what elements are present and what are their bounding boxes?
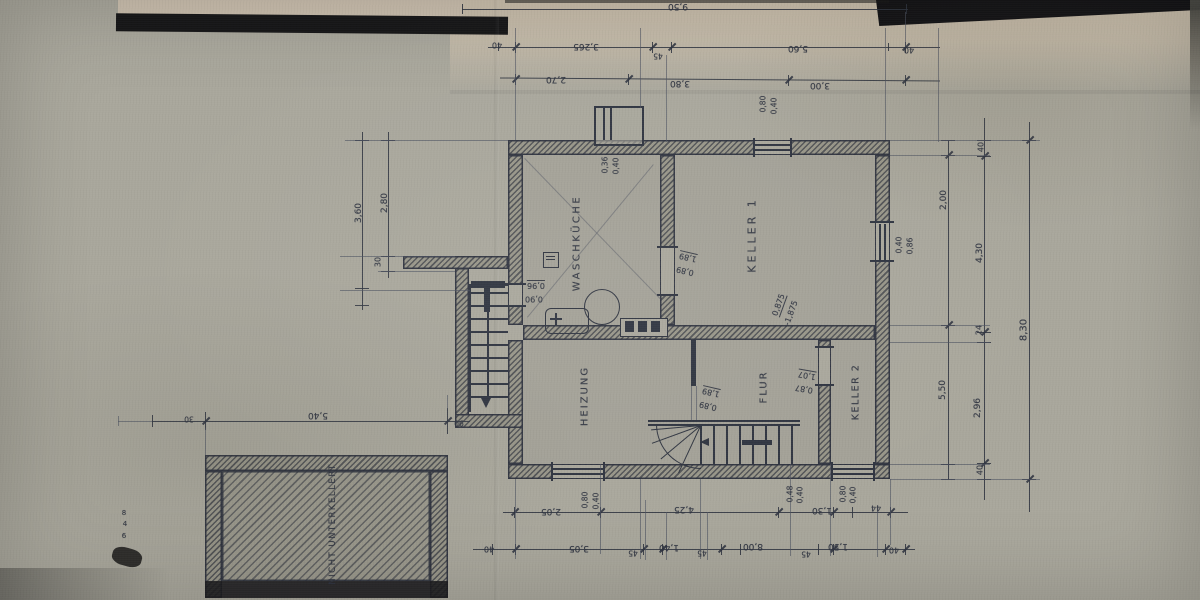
partition-heizung-flur-line [696,386,697,422]
window-right-line [884,224,886,260]
washing-machine-line [546,259,555,260]
drain-cross [555,313,557,325]
ink-blot-bottom-left [110,544,144,569]
window-jamb [603,462,605,481]
paper-crease-horizontal [450,90,1200,94]
window-right-wall [876,222,889,262]
sheet-edge-right [1190,0,1200,130]
dimension-text: 0,80 [759,96,768,113]
stair-down-arrow [481,398,491,408]
dimension-text: 45 [697,549,707,558]
door-jamb [657,246,678,248]
dimension-text: 4,25 [674,504,694,514]
dimension-text: 5,50 [938,380,948,400]
dimension-text: 2,96 [973,398,983,418]
dimension-text: 3,265 [573,41,599,51]
dimension-text: 0,40 [612,158,621,175]
partition-heizung-flur-line [691,386,692,422]
chimney-flue-line [610,108,612,140]
dimension-text: 0,86 [906,238,915,255]
laundry-tub [545,308,589,334]
dimension-text: 0,80 [581,492,590,509]
window-top-wall [755,141,790,154]
scanned-floor-plan-photo: WASCHKÜCHEKELLER 1HEIZUNGFLURKELLER 2NIC… [0,0,1200,600]
chimney-block [594,106,644,146]
window-bottom-right [833,465,873,478]
vent-grate-cell [651,321,660,332]
dimension-text: 6 [122,532,126,540]
dimension-text: 3,00 [810,80,830,90]
garage-wall-left [205,471,222,598]
partition-heizung-flur-bold [691,340,696,386]
sheet-edge-top-line [505,0,889,3]
wall-waschkueche-keller1 [660,155,675,325]
window-line [833,473,873,475]
window-jamb [753,138,755,157]
dimension-text: 3,05 [569,543,589,553]
dimension-text: 0,40 [849,487,858,504]
wall-top [508,140,890,155]
stair-tread [726,424,728,464]
stair-tread [470,344,508,346]
dimension-text: 9,50 [668,1,688,11]
dimension-text: 90 [454,419,464,428]
room-label-keller-1: KELLER 1 [746,197,759,273]
door-annex-to-heizung [509,285,522,305]
stair-tread [713,424,715,464]
wall-stair-annex-left [455,268,469,428]
dimension-text: 40 [976,465,985,475]
vent-grate-cell [625,321,634,332]
window-jamb [790,138,792,157]
dimension-text: 45 [628,549,638,558]
sheet-edge-black-bar [116,13,508,34]
dimension-text: 3,80 [670,78,690,88]
dimension-text: 0,80 [839,486,848,503]
dimension-text: 4 [123,520,127,528]
dimension-text: 0,40 [895,237,904,254]
door-jamb [505,283,526,285]
window-right-jamb [870,221,894,223]
stair-rail-line [487,310,489,400]
door-waschkueche-keller1 [661,248,674,294]
window-line [755,144,790,146]
wall-right [875,155,890,464]
room-label-flur: FLUR [759,370,770,403]
garage-wall-top [205,455,448,471]
dimension-text: 1,50 [828,541,848,551]
dimension-text: 8,00 [743,541,763,551]
wall-left-lower [508,340,523,464]
dimension-text: 1,40 [659,542,679,552]
dimension-text: 0,48 [786,486,795,503]
door-jamb [815,346,834,348]
window-jamb [831,462,833,481]
window-bottom-left [553,465,603,478]
stair-tread [470,370,508,372]
shadow-bottom-left [0,568,170,600]
stair-tread [470,383,508,385]
dimension-text: 45 [653,52,663,61]
room-label-keller-2: KELLER 2 [851,364,862,421]
dimension-text: 0,90 [525,295,543,304]
room-label-waschkueche: WASCHKÜCHE [572,195,583,291]
chimney-flue-line [603,108,605,140]
dimension-text: 0,40 [770,98,779,115]
dimension-text: 30 [184,415,194,424]
vent-grate-cell [638,321,647,332]
wall-wing-stub [403,256,508,269]
dimension-text: 5,60 [788,43,808,53]
dimension-text: 30 [374,257,383,267]
stair-tread [470,318,508,320]
dimension-text: 8,30 [1019,319,1030,341]
stair-tread [791,424,793,464]
washing-machine-line [546,256,555,257]
dimension-text: 24 [975,325,984,335]
stair-rail-bold [742,440,772,445]
dimension-text: 40 [492,41,502,50]
dimension-text: 2,80 [380,193,390,213]
dimension-text: 1,30 [812,505,832,515]
window-line [833,468,873,470]
dimension-text: 3,60 [354,203,364,223]
window-jamb [873,462,875,481]
dimension-text: 4,30 [975,243,985,263]
drain-gully-symbol [471,281,505,288]
dimension-text: 0,40 [796,487,805,504]
dimension-text: 44 [871,504,881,513]
room-label-nicht-unterkellert: NICHT UNTERKELLERT [328,463,338,584]
dimension-text: 2,05 [541,506,561,516]
stair-tread [778,424,780,464]
door-jamb [657,294,678,296]
garage-hatched-interior [222,471,430,581]
drain-gully-symbol [484,288,490,312]
window-line [553,468,603,470]
dimension-text: 45 [801,550,811,559]
washing-machine-symbol [543,252,559,268]
door-jamb [505,305,526,307]
stair-tread [470,357,508,359]
dimension-text: 40 [904,46,914,55]
dimension-text: 40 [889,546,899,555]
window-line [553,473,603,475]
room-label-heizung: HEIZUNG [580,366,591,426]
basin-circle [584,289,620,325]
stair-tread [739,424,741,464]
dimension-text: 40 [484,545,494,554]
dimension-text: 2,00 [939,190,949,210]
stair-tread [470,331,508,333]
stair-arrow [700,438,709,446]
dimension-text: 8 [122,509,126,517]
dimension-text: 0,36 [601,157,610,174]
dimension-text: 0,96 [527,280,545,290]
dimension-text: 5,40 [308,410,328,420]
window-right-line [879,224,881,260]
dimension-text: 2,70 [546,74,566,84]
door-flur-keller2 [819,348,830,384]
garage-wall-right [430,471,448,598]
window-line [755,149,790,151]
door-jamb [815,384,834,386]
window-jamb [551,462,553,481]
garage-wall-bottom [205,581,448,598]
dimension-text: 0,40 [592,493,601,510]
dimension-text: 40 [977,142,986,152]
window-right-jamb [870,260,894,262]
